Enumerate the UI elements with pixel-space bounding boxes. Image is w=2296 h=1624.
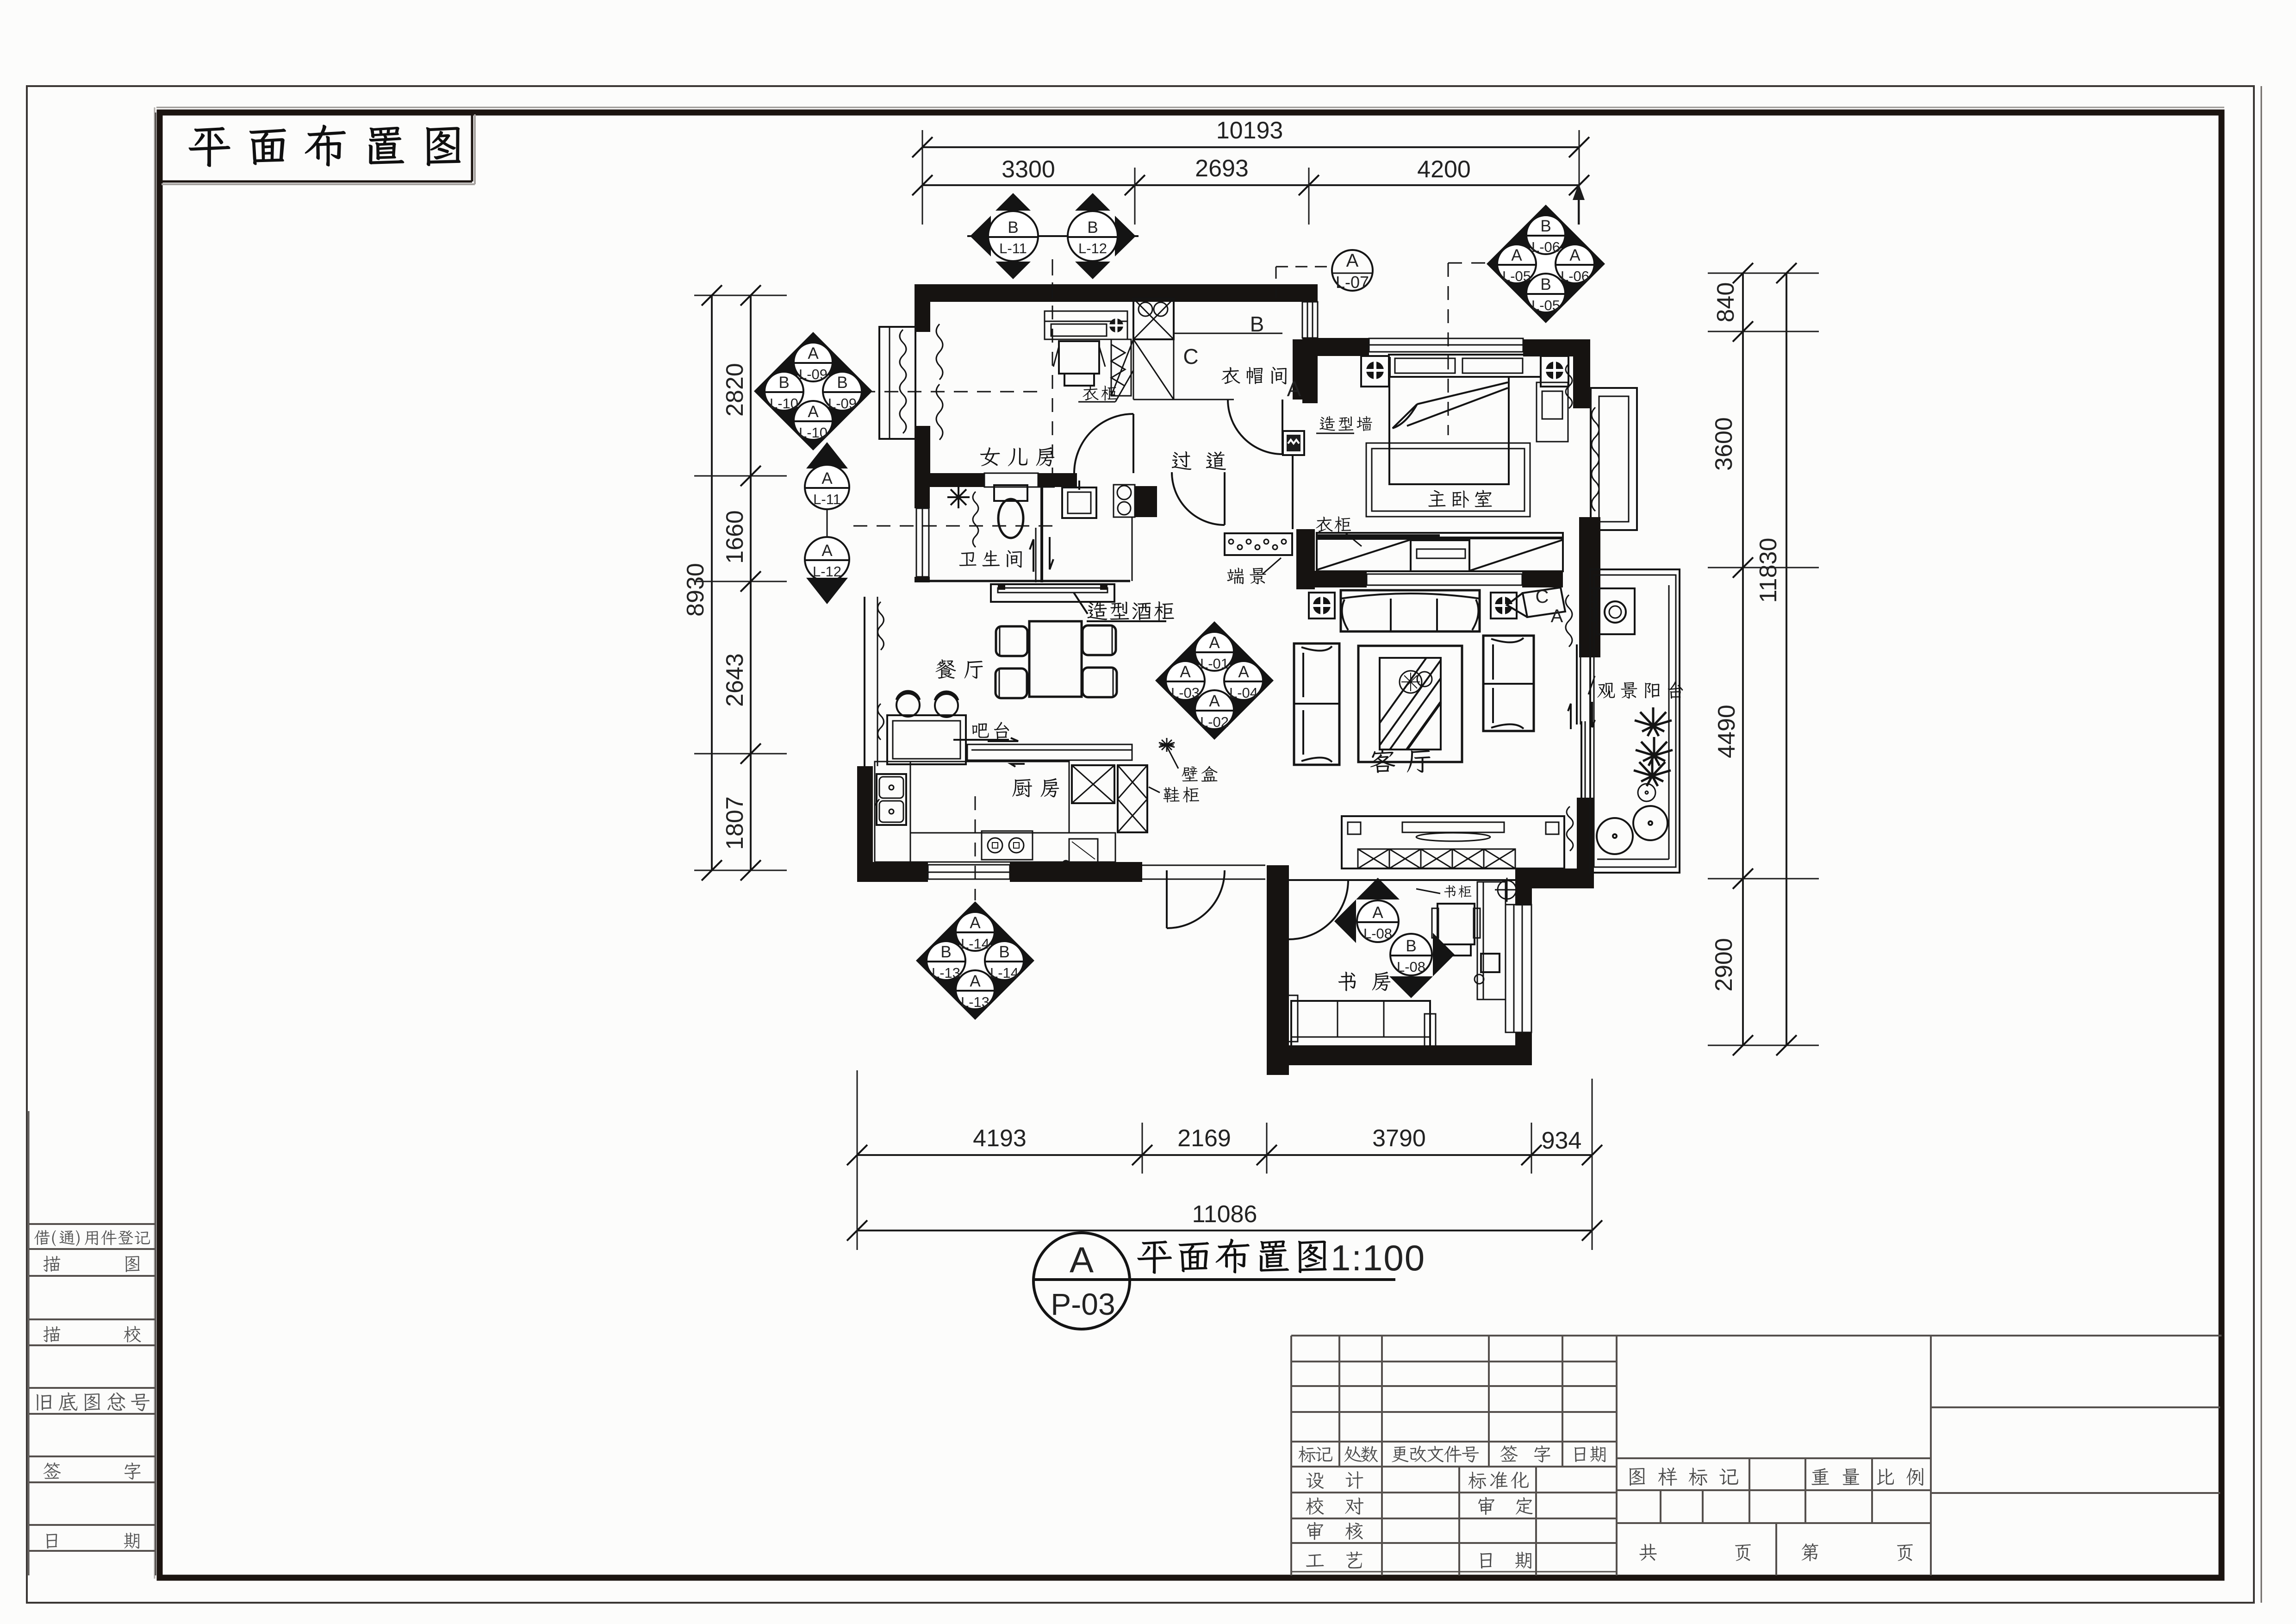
svg-text:B: B (1008, 219, 1018, 237)
svg-text:L-12: L-12 (813, 563, 841, 580)
svg-text:L-10: L-10 (770, 395, 798, 412)
svg-text:L-06: L-06 (1531, 239, 1560, 255)
svg-text:A: A (1070, 1239, 1094, 1280)
svg-text:11086: 11086 (1192, 1201, 1257, 1228)
svg-text:B: B (1406, 937, 1416, 955)
svg-text:L-13: L-13 (961, 994, 989, 1010)
svg-text:L-14: L-14 (961, 936, 989, 952)
svg-text:C: C (1536, 587, 1549, 607)
svg-text:L-12: L-12 (1078, 240, 1107, 256)
svg-text:A: A (808, 344, 819, 362)
svg-text:B: B (1087, 219, 1098, 237)
svg-text:P-03: P-03 (1051, 1287, 1115, 1321)
svg-text:L-08: L-08 (1397, 959, 1425, 975)
svg-text:L-08: L-08 (1363, 925, 1392, 942)
svg-text:L-09: L-09 (799, 366, 828, 382)
svg-text:B: B (837, 374, 847, 392)
svg-text:L-02: L-02 (1200, 714, 1229, 730)
svg-text:A: A (970, 972, 981, 990)
svg-text:4490: 4490 (1713, 705, 1740, 758)
svg-text:B: B (778, 374, 789, 392)
svg-text:2169: 2169 (1177, 1125, 1231, 1152)
svg-text:L-13: L-13 (932, 965, 960, 981)
svg-text:L-11: L-11 (813, 491, 841, 507)
svg-text:3300: 3300 (1002, 156, 1055, 183)
svg-text:10193: 10193 (1216, 117, 1283, 144)
svg-text:A: A (821, 469, 833, 487)
svg-text:A: A (1287, 377, 1301, 401)
svg-text:L-10: L-10 (799, 425, 828, 441)
svg-text:A: A (1569, 246, 1580, 264)
svg-text:L-04: L-04 (1229, 685, 1258, 701)
svg-text:3600: 3600 (1711, 417, 1737, 471)
svg-text:1:100: 1:100 (1331, 1237, 1425, 1278)
svg-text:L-05: L-05 (1502, 268, 1531, 284)
svg-text:C: C (1183, 344, 1198, 369)
svg-text:A: A (821, 542, 833, 560)
svg-text:A: A (1346, 250, 1359, 271)
svg-text:2643: 2643 (722, 653, 748, 707)
svg-text:11830: 11830 (1755, 538, 1782, 603)
svg-text:A: A (1551, 606, 1563, 626)
svg-text:A: A (1511, 246, 1522, 264)
svg-text:2900: 2900 (1711, 938, 1737, 992)
svg-text:L-06: L-06 (1561, 268, 1589, 284)
svg-text:L-01: L-01 (1200, 656, 1229, 672)
svg-text:B: B (1250, 312, 1264, 336)
svg-text:A: A (1238, 663, 1249, 681)
svg-text:4200: 4200 (1417, 156, 1471, 183)
svg-text:A: A (808, 403, 819, 421)
svg-text:934: 934 (1542, 1127, 1582, 1154)
svg-text:B: B (940, 943, 951, 961)
svg-text:2693: 2693 (1195, 155, 1249, 182)
svg-text:8930: 8930 (682, 563, 709, 617)
svg-text:B: B (999, 943, 1009, 961)
svg-text:A: A (1209, 692, 1220, 710)
svg-text:840: 840 (1712, 282, 1739, 323)
svg-text:A: A (1180, 663, 1191, 681)
svg-text:4193: 4193 (973, 1125, 1027, 1152)
svg-text:L-03: L-03 (1171, 685, 1200, 701)
svg-text:2820: 2820 (722, 363, 748, 417)
svg-text:A: A (1372, 904, 1383, 922)
svg-text:B: B (1540, 217, 1551, 235)
svg-text:3790: 3790 (1372, 1125, 1426, 1152)
svg-text:B: B (1540, 275, 1551, 294)
svg-text:1807: 1807 (722, 796, 748, 850)
svg-text:1660: 1660 (722, 510, 748, 564)
svg-text:L-11: L-11 (999, 240, 1027, 256)
svg-text:L-07: L-07 (1336, 273, 1369, 292)
svg-text:L-09: L-09 (828, 395, 857, 412)
svg-text:A: A (1209, 634, 1220, 652)
svg-text:L-14: L-14 (990, 965, 1019, 981)
svg-text:L-05: L-05 (1531, 297, 1560, 313)
svg-text:A: A (970, 914, 981, 932)
